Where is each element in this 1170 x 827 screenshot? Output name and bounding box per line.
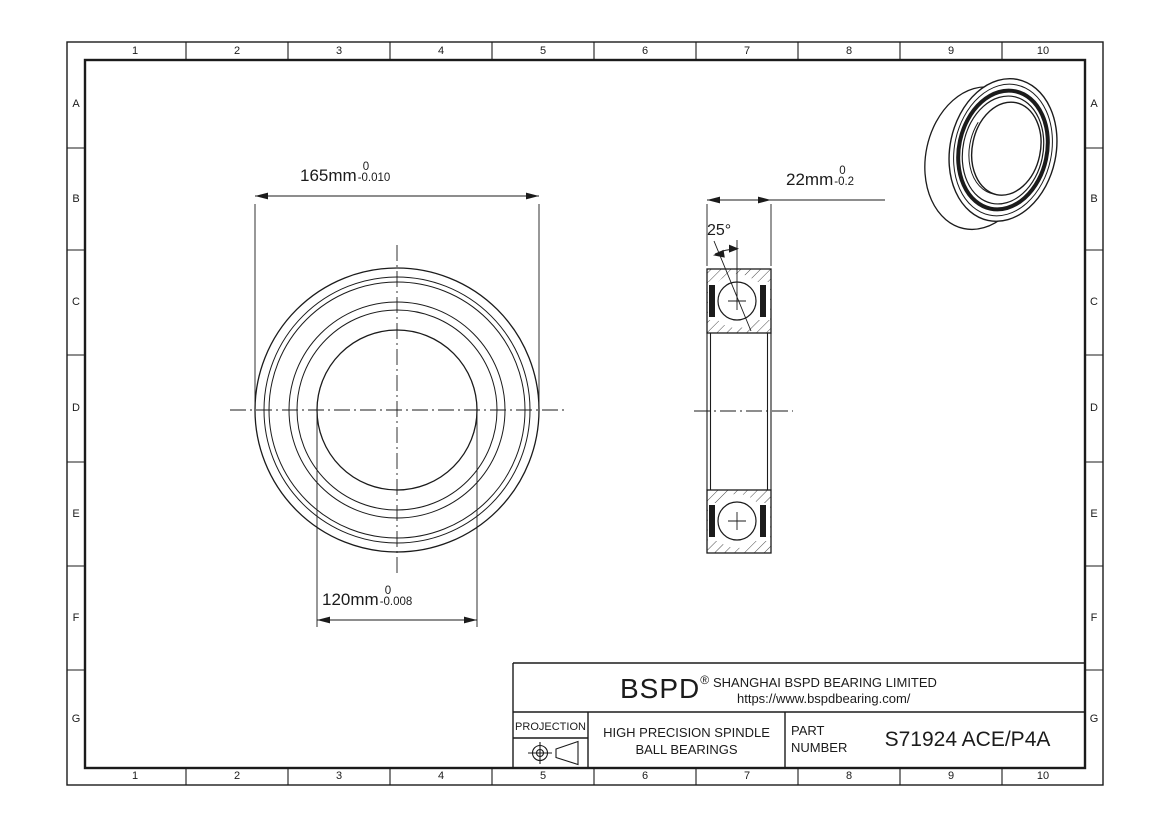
grid-row-label: E — [67, 507, 85, 521]
part-label-line1: PART — [791, 722, 847, 739]
registered-trademark-icon: ® — [700, 673, 709, 687]
grid-col-label: 7 — [727, 769, 767, 783]
grid-col-label: 9 — [931, 44, 971, 58]
seal-right — [760, 285, 766, 317]
grid-row-label: B — [67, 192, 85, 206]
grid-col-label: 7 — [727, 44, 767, 58]
drawing-canvas — [0, 0, 1170, 827]
grid-col-label: 1 — [115, 44, 155, 58]
grid-row-label: D — [67, 401, 85, 415]
grid-col-label: 9 — [931, 769, 971, 783]
grid-row-label: C — [67, 295, 85, 309]
dim-width: 22mm 0 -0.2 — [786, 170, 854, 189]
part-number-label: PART NUMBER — [791, 722, 847, 756]
seal-left-bottom — [709, 505, 715, 537]
company-website: https://www.bspdbearing.com/ — [737, 691, 910, 706]
grid-row-label: E — [1085, 507, 1103, 521]
grid-row-label: F — [1085, 611, 1103, 625]
grid-col-label: 10 — [1023, 769, 1063, 783]
grid-row-label: D — [1085, 401, 1103, 415]
contact-angle-label: 25° — [707, 222, 731, 240]
grid-row-label: G — [1085, 712, 1103, 726]
bearing-3d-view — [912, 64, 1070, 244]
section-view — [694, 197, 885, 553]
grid-col-label: 2 — [217, 769, 257, 783]
grid-col-label: 5 — [523, 44, 563, 58]
grid-col-label: 6 — [625, 44, 665, 58]
dim-tol-lower: -0.008 — [380, 597, 413, 608]
seal-left — [709, 285, 715, 317]
bore-walls — [707, 333, 771, 490]
grid-row-label: G — [67, 712, 85, 726]
front-view — [230, 193, 565, 627]
grid-col-label: 4 — [421, 769, 461, 783]
dim-22-lines — [707, 200, 885, 266]
seal-right-bottom — [760, 505, 766, 537]
grid-row-label: A — [1085, 97, 1103, 111]
grid-col-label: 3 — [319, 44, 359, 58]
grid-col-label: 3 — [319, 769, 359, 783]
grid-col-label: 2 — [217, 44, 257, 58]
front-view-centerlines — [230, 245, 565, 577]
section-bottom-block — [707, 490, 771, 553]
dim-value: 165mm — [300, 166, 357, 185]
grid-row-label: A — [67, 97, 85, 111]
dim-tol-lower: -0.2 — [834, 177, 854, 188]
product-description: HIGH PRECISION SPINDLE BALL BEARINGS — [588, 724, 785, 758]
dim-bore-diameter: 120mm 0 -0.008 — [322, 590, 412, 609]
company-name: SHANGHAI BSPD BEARING LIMITED — [713, 675, 937, 690]
company-logo: BSPD® — [620, 673, 709, 705]
drawing-sheet: 1 2 3 4 5 6 7 8 9 10 1 2 3 4 5 6 7 8 9 1… — [0, 0, 1170, 827]
dim-tol-lower: -0.010 — [358, 173, 391, 184]
grid-col-label: 1 — [115, 769, 155, 783]
dim-value: 120mm — [322, 590, 379, 609]
part-number-value: S71924 ACE/P4A — [855, 728, 1080, 752]
projection-symbol-icon — [528, 742, 578, 765]
dim-outer-diameter: 165mm 0 -0.010 — [300, 166, 390, 185]
grid-col-label: 10 — [1023, 44, 1063, 58]
dim-value: 22mm — [786, 170, 833, 189]
logo-text: BSPD — [620, 673, 700, 704]
grid-col-label: 8 — [829, 44, 869, 58]
grid-col-label: 8 — [829, 769, 869, 783]
grid-col-label: 6 — [625, 769, 665, 783]
grid-row-label: F — [67, 611, 85, 625]
grid-col-label: 5 — [523, 769, 563, 783]
grid-row-label: C — [1085, 295, 1103, 309]
part-label-line2: NUMBER — [791, 739, 847, 756]
projection-label: PROJECTION — [513, 721, 588, 733]
grid-col-label: 4 — [421, 44, 461, 58]
grid-row-label: B — [1085, 192, 1103, 206]
